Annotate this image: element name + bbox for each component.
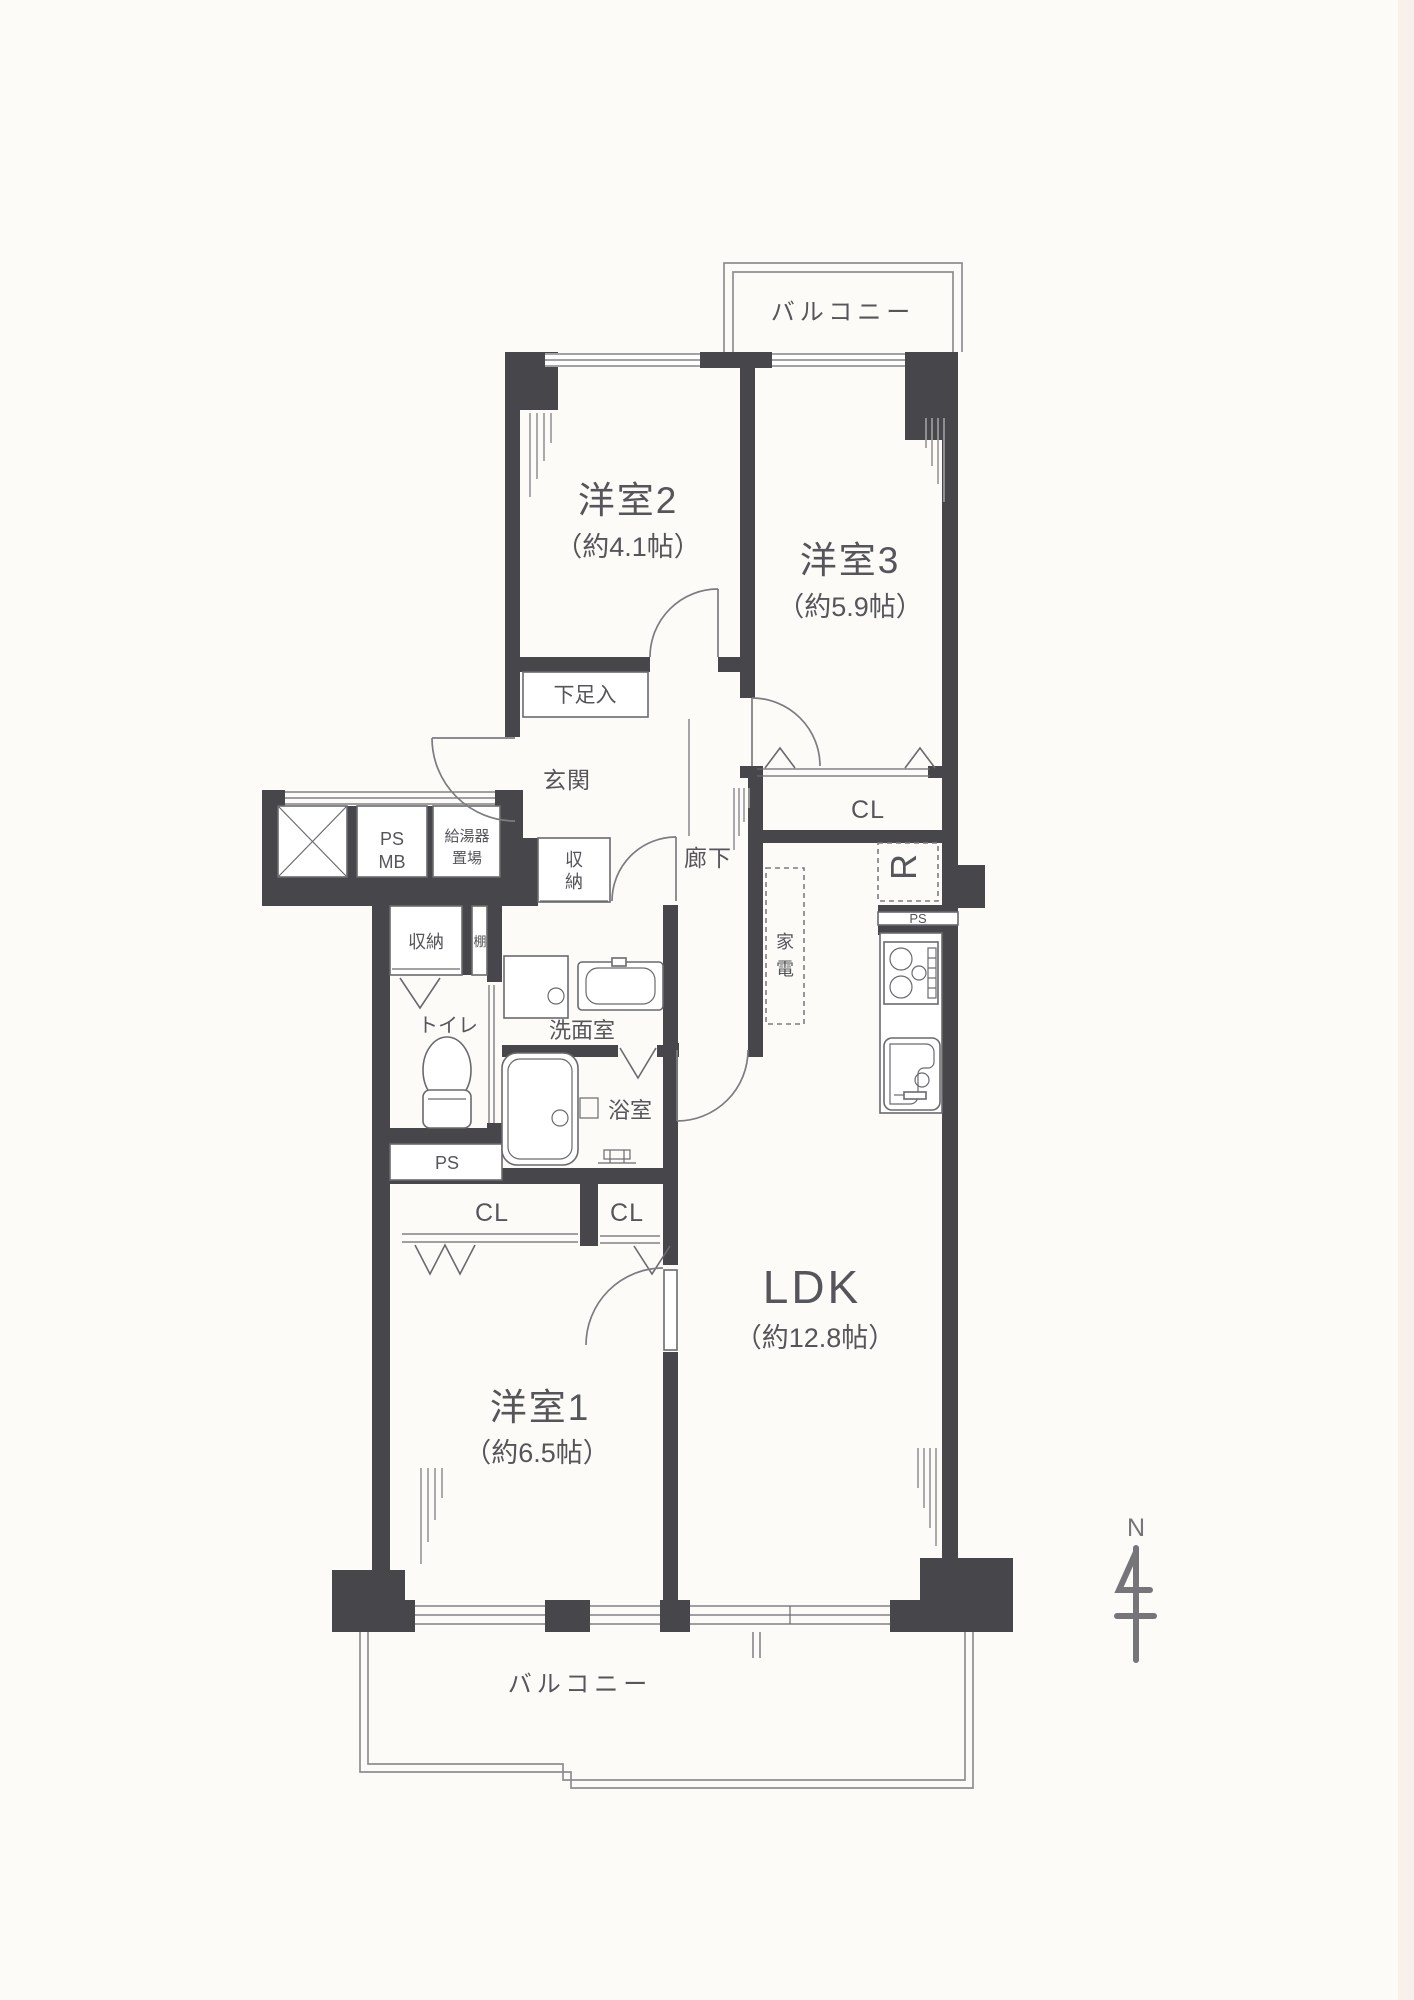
room-ldk: LDK （約12.8帖） [735,1261,896,1353]
room-west1-name: 洋室1 [490,1387,591,1428]
balcony-top: バルコニー [724,263,962,352]
window-west2-top [545,353,700,367]
floor-plan-svg: バルコニー バルコニー [0,0,1414,2000]
room2-door-arc [650,589,718,657]
window-west1-a [415,1606,545,1624]
toilet-label: トイレ [418,1015,478,1037]
room-west1-size: （約6.5帖） [464,1438,610,1468]
washroom: 洗面室 [504,956,663,1043]
washroom-label: 洗面室 [549,1018,615,1043]
wc-storage: 収納 [390,906,462,1008]
entrance-label: 玄関 [543,767,591,793]
floor-plan-page: バルコニー バルコニー [0,0,1414,2000]
hall-storage-label-1: 収 [565,850,583,870]
bath-fold-door [620,1048,656,1078]
room-ldk-name: LDK [763,1261,861,1313]
washing-machine-icon [504,956,568,1018]
closet-w3-door-mark-1 [765,748,795,768]
vanity-sink-icon [578,958,663,1010]
window-ldk-bottom [690,1606,890,1624]
toilet-room: トイレ [418,985,494,1128]
bathroom: 浴室 [502,1048,656,1165]
closet-left-fold-door [415,1245,475,1274]
room-west2-name: 洋室2 [578,480,679,521]
closet-left: CL [402,1199,578,1274]
appliance-space: 家 電 [766,868,804,1024]
fridge-label: R [883,854,924,880]
window-west1-b [590,1606,660,1624]
compass-north-icon: N [1117,1514,1154,1660]
vent-hatch-ldk [918,1448,936,1546]
room-west3: 洋室3 （約5.9帖） [777,540,923,622]
washroom-door-arc [612,837,676,901]
window-west3-top [772,353,905,367]
vent-hatch-hall [734,788,749,850]
room-west2-size: （約4.1帖） [555,532,701,562]
balcony-bottom-label: バルコニー [508,1671,653,1698]
toilet-icon [423,1037,471,1128]
hallway-label: 廊下 [684,845,732,871]
hall-storage: 収 納 [538,838,610,902]
wc-storage-fold-door [400,978,440,1008]
mb-label: MB [379,852,406,872]
bath-label: 浴室 [608,1098,652,1123]
room-west2: 洋室2 （約4.1帖） [555,480,701,562]
vent-hatch-west1 [421,1468,442,1564]
room-west3-name: 洋室3 [800,540,901,581]
room1-door [586,1268,677,1350]
closet-right-label: CL [610,1199,644,1227]
room-west3-size: （約5.9帖） [777,592,923,622]
room-west1: 洋室1 （約6.5帖） [464,1387,610,1468]
balcony-bottom: バルコニー [360,1632,973,1788]
closet-right: CL [600,1199,670,1274]
bathtub-icon [502,1053,578,1165]
kitchen-sink-icon [884,1038,940,1110]
ps-lower-label: PS [435,1153,459,1173]
compass-north-label: N [1127,1514,1145,1542]
ps-mb-box: PS MB [357,806,427,877]
shelf-box: 棚 [472,906,487,975]
ps-kitchen-label: PS [909,911,927,926]
closet-w3-label: CL [851,796,885,824]
shelf-label: 棚 [473,934,486,949]
appliance-label-2: 電 [776,959,794,979]
hall-storage-label-2: 納 [565,872,583,892]
vent-hatch-west2 [530,413,551,497]
wc-storage-label: 収納 [408,932,444,952]
shower-icon [598,1150,636,1163]
shoe-box-label: 下足入 [554,684,617,707]
shoe-box: 下足入 [523,672,648,717]
ps-label: PS [380,829,404,849]
appliance-label-1: 家 [776,932,794,952]
room-ldk-size: （約12.8帖） [735,1323,896,1353]
ps-lower-box: PS [390,1144,502,1180]
closet-w3: CL [757,748,935,824]
closet-w3-door-mark-2 [905,748,935,768]
ldk-door-arc [677,1050,748,1121]
closet-left-label: CL [475,1199,509,1227]
bath-control-icon [580,1098,598,1118]
balcony-top-label: バルコニー [771,299,916,326]
water-heater-label-1: 給湯器 [444,828,489,845]
shaft-box [278,806,347,877]
water-heater-label-2: 置場 [452,850,482,867]
stove-icon [884,942,938,1004]
